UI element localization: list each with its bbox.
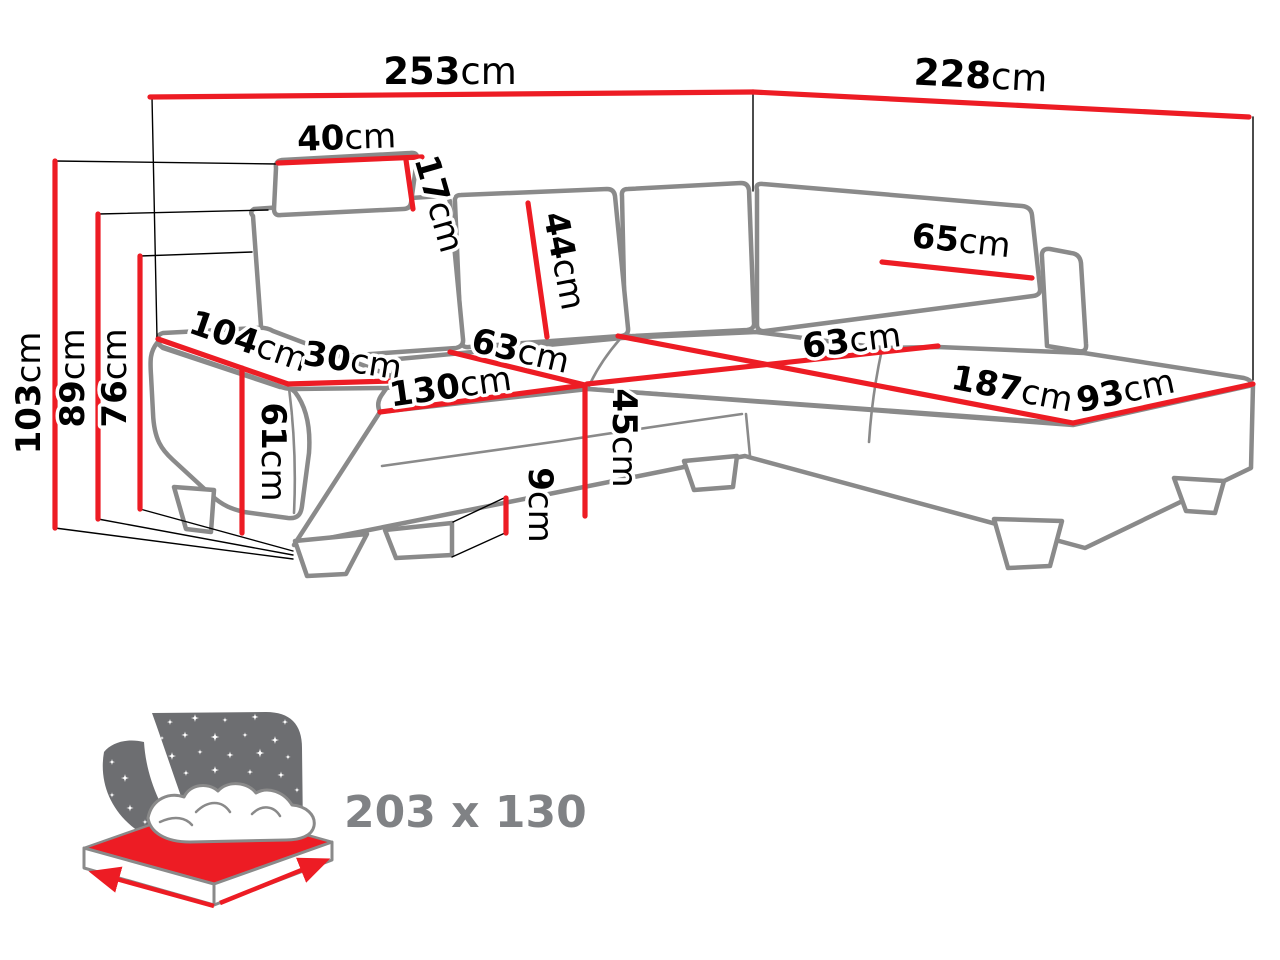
sofa-dimension-diagram: 253cm 228cm 103cm 89cm 76cm 40cm 17cm 44…	[0, 0, 1280, 960]
sofa-back-cushion-3	[622, 183, 754, 336]
sofa-leg-front-left	[295, 534, 367, 576]
proj-9-bottom-tick	[452, 533, 505, 557]
label-228: 228cm	[913, 51, 1049, 101]
sofa-right-back-panel	[1042, 249, 1086, 351]
proj-103-top	[55, 161, 278, 164]
sofa-leg-chaise-right	[1174, 478, 1224, 513]
sofa-leg-corner	[684, 456, 737, 490]
label-103: 103cm	[9, 332, 49, 455]
label-40: 40cm	[296, 116, 396, 159]
sofa-leg-mid-left	[385, 523, 452, 558]
label-61: 61cm	[253, 402, 293, 501]
sleeping-area-label: 203 x 130	[344, 787, 587, 838]
label-9: 9cm	[520, 467, 560, 543]
label-76: 76cm	[95, 328, 135, 427]
sofa-leg-back-left	[174, 487, 214, 532]
proj-76-top	[140, 252, 252, 256]
proj-89-top	[98, 210, 268, 214]
label-89: 89cm	[53, 328, 93, 427]
label-45: 45cm	[604, 388, 644, 487]
proj-left-end	[152, 97, 157, 338]
sofa-leg-chaise-front	[994, 519, 1062, 568]
sleeping-function-icon: 203 x 130	[84, 712, 587, 906]
label-253: 253cm	[383, 50, 517, 93]
diagram-canvas: 253cm 228cm 103cm 89cm 76cm 40cm 17cm 44…	[0, 0, 1280, 960]
